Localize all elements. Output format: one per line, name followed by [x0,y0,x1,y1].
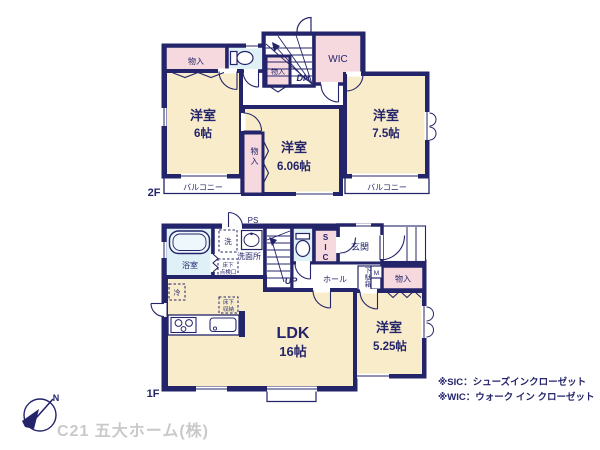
label-underfloor-hatch-2: 点検口 [220,268,237,276]
label-floor-1f: 1F [147,388,160,400]
label-washroom: 洗面所 [237,251,261,261]
label-balcony-east: バルコニー [367,183,407,192]
label-ldk: LDK [277,325,310,342]
label-room-2f-center-size: 6.06帖 [277,159,311,173]
label-room-2f-west: 洋室 [190,108,216,123]
label-fridge: 冷 [174,288,181,297]
label-room-1f-east: 洋室 [376,320,402,335]
label-underfloor-storage-1: 床下 [223,298,235,306]
label-room-2f-east-size: 7.5帖 [372,126,400,140]
terrace-step [267,392,316,402]
stairwell-top-arc [297,18,311,32]
kitchen-counter [168,311,245,337]
label-hall: ホール [323,275,347,284]
company-name: C21 五大ホーム(株) [57,421,209,440]
label-shoe-cabinet: 下駄箱 [361,267,371,288]
label-underfloor-storage-2: 収納 [223,305,235,313]
note-sic: ※SIC：シューズインクローゼット [438,376,586,388]
label-closet-2f-stair: 物入 [271,67,285,76]
floor-1f: 浴室 洗 洗面所 PS 床下 点検口 UP 玄関 ホール M 物入 冷 床下 収… [147,213,434,402]
toilet-icon-2f [231,52,254,65]
label-room-2f-east: 洋室 [373,108,399,123]
label-floor-2f: 2F [148,187,161,199]
compass-icon: N [22,393,59,431]
label-stairs-dn: DN [297,73,310,83]
note-wic: ※WIC：ウォーク イン クローゼット [438,391,594,403]
label-room-1f-east-size: 5.25帖 [373,339,407,353]
label-bathroom: 浴室 [182,260,198,270]
label-washer: 洗 [224,236,232,246]
floor-2f: 物入 物入 WIC DN 洋室 6帖 洋室 6.06帖 洋室 7.5帖 バルコニ… [148,18,436,200]
label-entrance: 玄関 [351,241,369,252]
room-2f-west [165,71,241,176]
label-stairs-up: UP [285,276,298,286]
floor-plan: 物入 物入 WIC DN 洋室 6帖 洋室 6.06帖 洋室 7.5帖 バルコニ… [0,0,600,450]
label-closet-1f: 物入 [395,274,411,284]
label-sic: SIC [321,233,330,263]
label-wic: WIC [328,54,347,65]
label-meter: M [374,270,379,277]
label-underfloor-hatch-1: 床下 [222,261,234,269]
compass-n-label: N [53,393,60,403]
label-closet-2f-center: 物入 [249,147,260,167]
floor-plan-drawing: 物入 物入 WIC DN 洋室 6帖 洋室 6.06帖 洋室 7.5帖 バルコニ… [0,0,600,450]
label-closet-2f-top-left: 物入 [188,56,204,66]
bathtub-icon [170,231,210,254]
label-balcony-west: バルコニー [183,183,223,192]
toilet-icon-1f [296,234,310,257]
label-room-2f-west-size: 6帖 [194,126,212,140]
washbasin-icon [242,231,263,250]
label-ldk-size: 16帖 [279,344,306,359]
label-room-2f-center: 洋室 [281,140,307,155]
label-ps: PS [248,216,259,225]
room-2f-east [345,74,427,176]
